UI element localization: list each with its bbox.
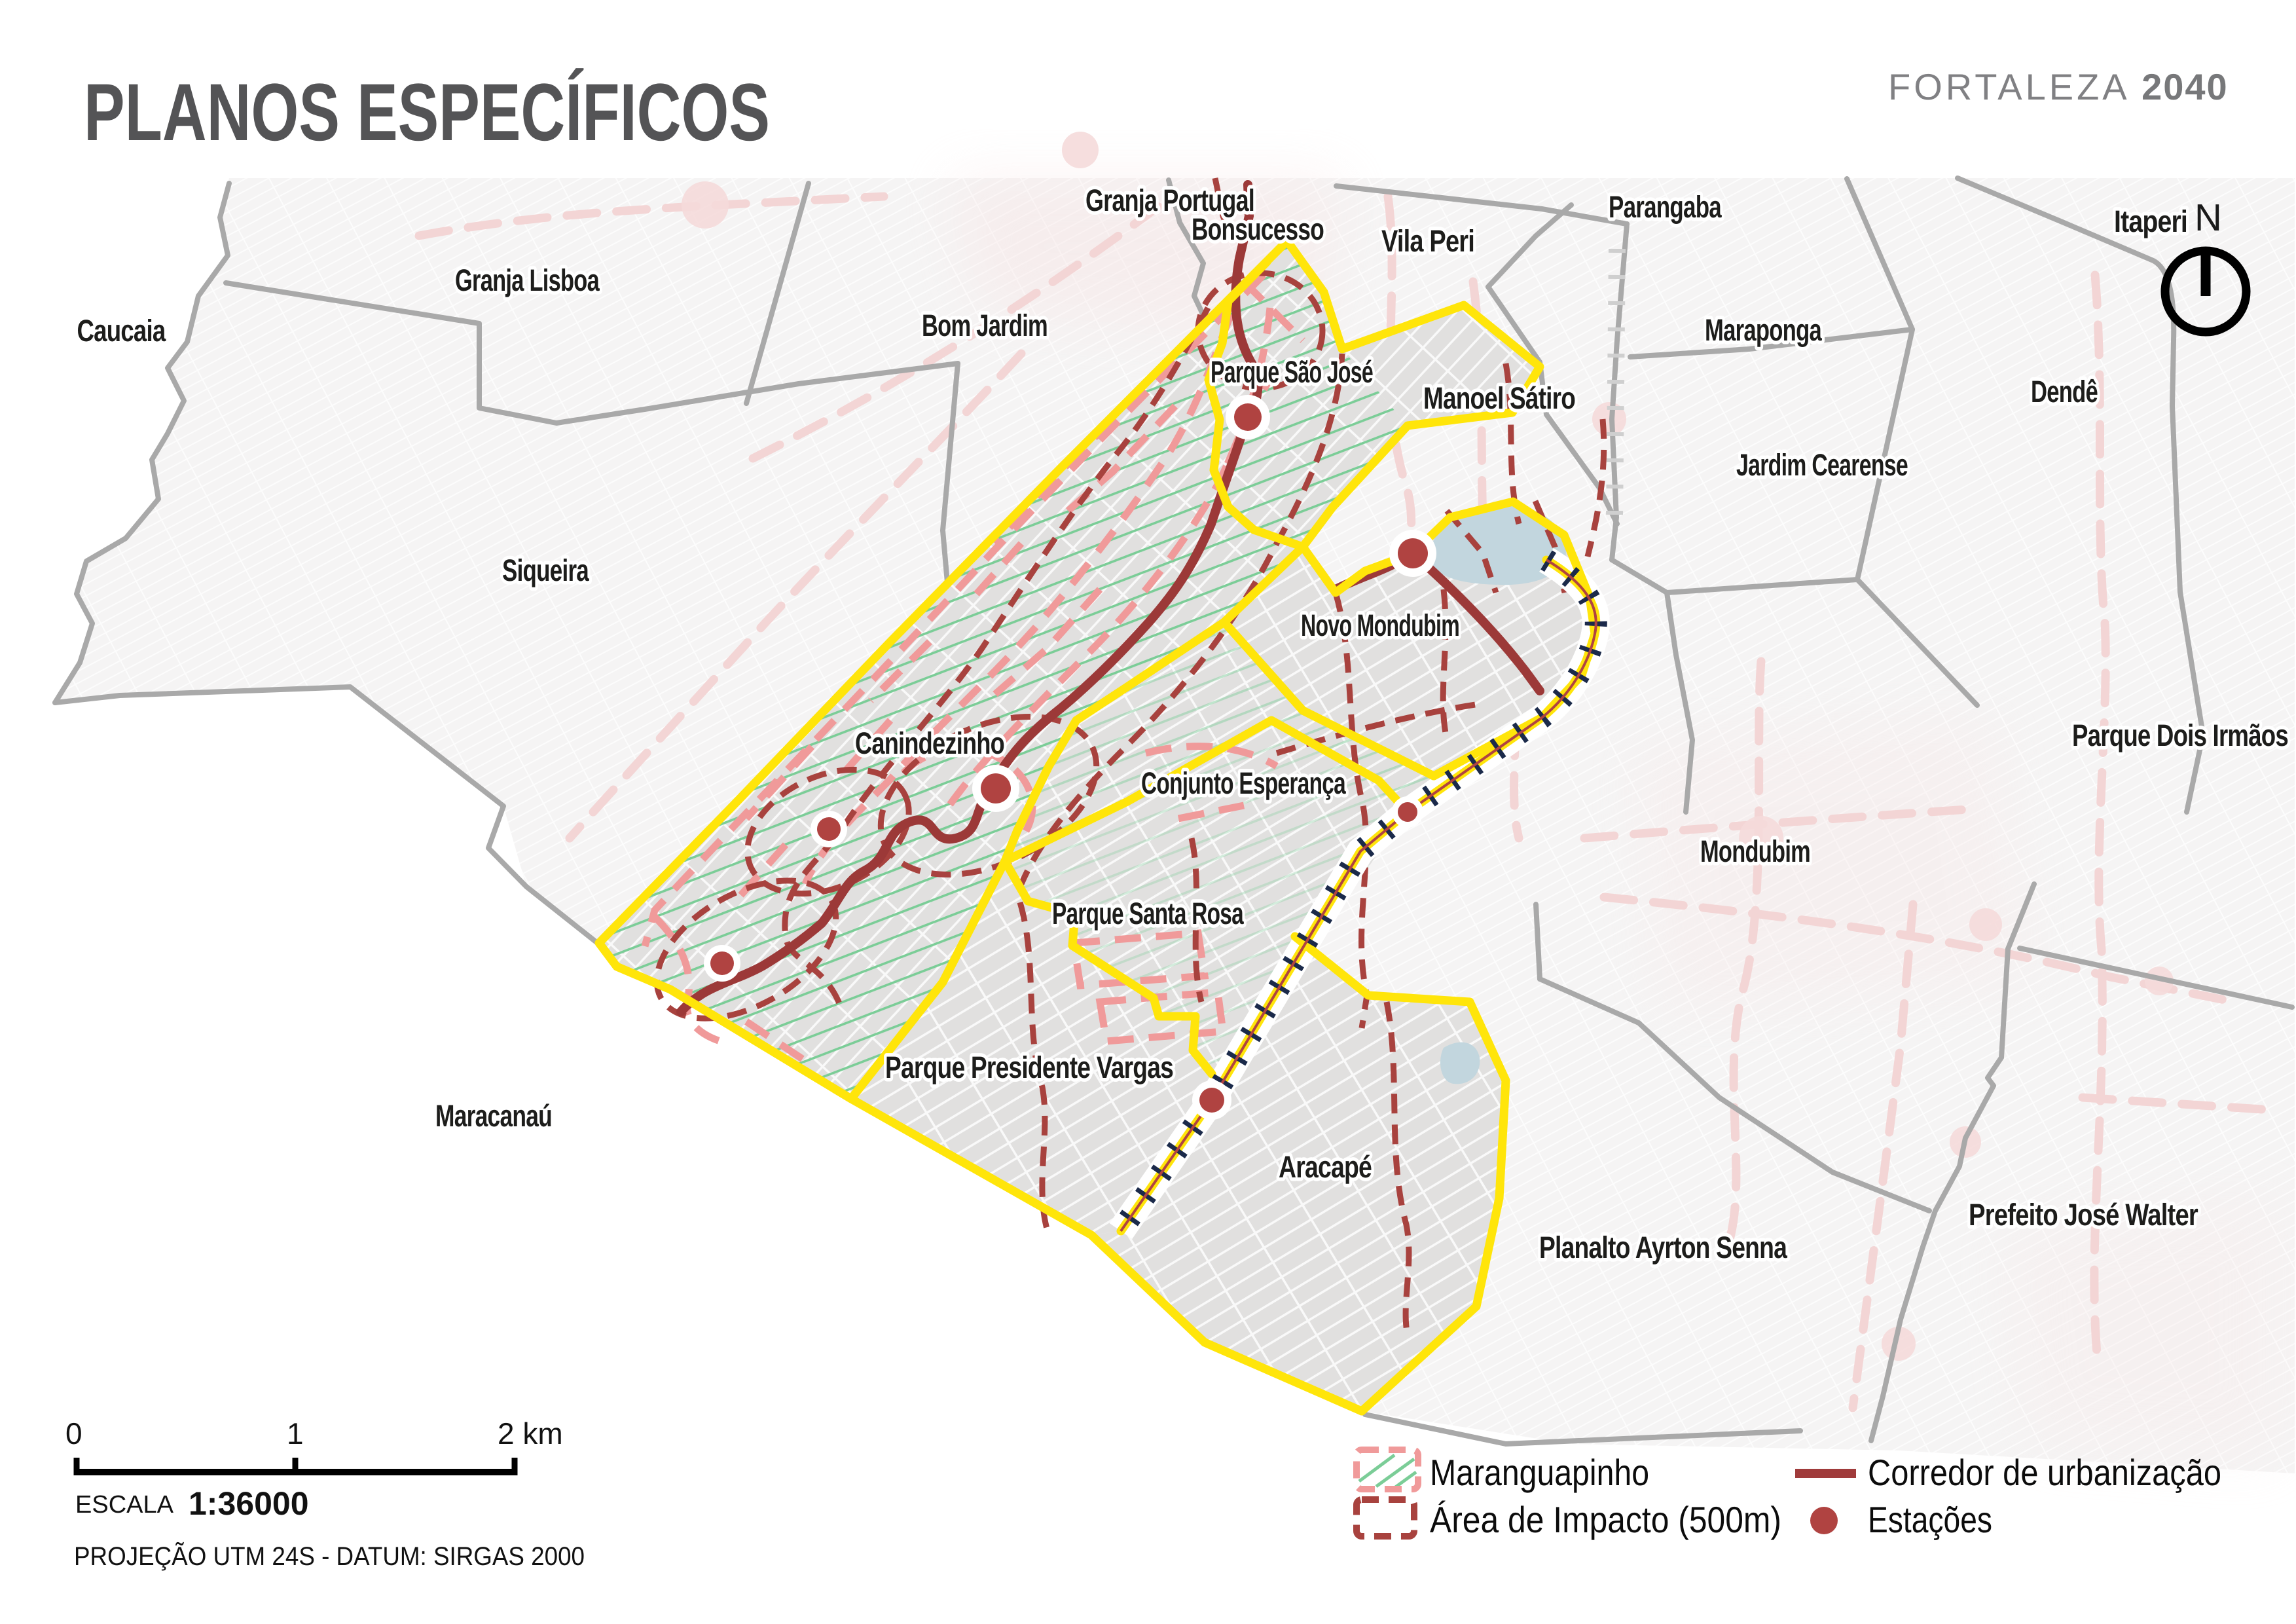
svg-text:PROJEÇÃO UTM 24S - DATUM: SIRG: PROJEÇÃO UTM 24S - DATUM: SIRGAS 2000 xyxy=(74,1541,585,1571)
svg-text:Parque Santa Rosa: Parque Santa Rosa xyxy=(1052,896,1244,931)
svg-text:FORTALEZA 2040: FORTALEZA 2040 xyxy=(1888,66,2229,107)
svg-text:Dendê: Dendê xyxy=(2031,374,2098,409)
svg-text:Corredor de urbanização: Corredor de urbanização xyxy=(1868,1452,2221,1493)
svg-text:Maranguapinho: Maranguapinho xyxy=(1430,1452,1649,1493)
svg-text:PLANOS ESPECÍFICOS: PLANOS ESPECÍFICOS xyxy=(84,67,770,158)
svg-text:Jardim Cearense: Jardim Cearense xyxy=(1736,447,1908,482)
svg-text:2 km: 2 km xyxy=(498,1416,563,1450)
svg-text:Parque Dois Irmãos: Parque Dois Irmãos xyxy=(2072,718,2288,752)
svg-text:Caucaia: Caucaia xyxy=(77,313,166,348)
svg-text:Novo Mondubim: Novo Mondubim xyxy=(1301,608,1459,642)
svg-text:Vila Peri: Vila Peri xyxy=(1381,223,1474,258)
svg-text:1: 1 xyxy=(287,1416,304,1450)
svg-text:Itaperi: Itaperi xyxy=(2114,204,2187,238)
svg-text:Estações: Estações xyxy=(1868,1499,1992,1540)
svg-text:ESCALA: ESCALA xyxy=(75,1491,174,1519)
svg-text:Bonsucesso: Bonsucesso xyxy=(1192,212,1324,246)
svg-text:Maracanaú: Maracanaú xyxy=(435,1098,552,1133)
svg-text:Manoel Sátiro: Manoel Sátiro xyxy=(1423,380,1575,415)
svg-text:Conjunto Esperança: Conjunto Esperança xyxy=(1141,766,1346,800)
svg-text:Prefeito José Walter: Prefeito José Walter xyxy=(1969,1197,2198,1232)
svg-text:Planalto Ayrton Senna: Planalto Ayrton Senna xyxy=(1539,1230,1787,1264)
svg-text:Área de Impacto (500m): Área de Impacto (500m) xyxy=(1430,1499,1781,1540)
svg-text:Granja Lisboa: Granja Lisboa xyxy=(455,263,600,297)
svg-text:Aracapé: Aracapé xyxy=(1279,1149,1372,1184)
svg-text:Maraponga: Maraponga xyxy=(1705,312,1822,347)
svg-text:N: N xyxy=(2195,196,2222,239)
svg-text:Siqueira: Siqueira xyxy=(502,553,589,587)
svg-text:Parque Presidente Vargas: Parque Presidente Vargas xyxy=(885,1050,1173,1084)
svg-text:0: 0 xyxy=(65,1416,82,1450)
svg-text:Mondubim: Mondubim xyxy=(1700,834,1810,868)
svg-text:1:36000: 1:36000 xyxy=(189,1485,309,1522)
svg-text:Parque São José: Parque São José xyxy=(1211,354,1373,389)
svg-text:Parangaba: Parangaba xyxy=(1609,189,1722,224)
svg-text:Canindezinho: Canindezinho xyxy=(855,726,1004,760)
svg-text:Bom Jardim: Bom Jardim xyxy=(922,308,1048,342)
